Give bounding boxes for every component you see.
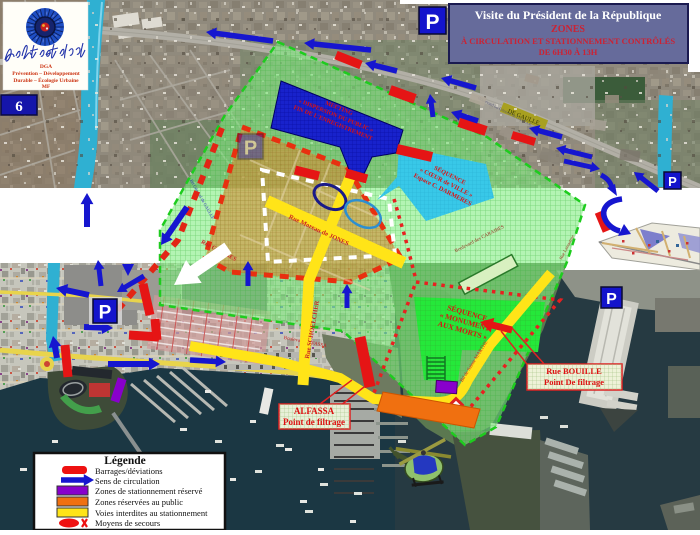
svg-text:P: P bbox=[668, 174, 677, 189]
svg-text:Sens de circulation: Sens de circulation bbox=[95, 476, 160, 486]
svg-text:6: 6 bbox=[15, 99, 23, 115]
svg-text:Durable – Écologie Urbaine: Durable – Écologie Urbaine bbox=[13, 76, 79, 84]
svg-text:P: P bbox=[606, 291, 617, 308]
svg-text:Point De filtrage: Point De filtrage bbox=[544, 377, 604, 387]
svg-text:Barrages/déviations: Barrages/déviations bbox=[95, 466, 163, 476]
svg-text:MF: MF bbox=[42, 84, 51, 90]
svg-text:Point de filtrage: Point de filtrage bbox=[283, 417, 345, 427]
svg-text:ZONES: ZONES bbox=[551, 24, 585, 35]
svg-text:Prévention – Développement: Prévention – Développement bbox=[12, 71, 80, 77]
svg-text:Rue BOUILLE: Rue BOUILLE bbox=[546, 366, 602, 376]
svg-text:Moyens de secours: Moyens de secours bbox=[95, 518, 160, 528]
svg-text:P: P bbox=[425, 11, 439, 34]
svg-text:Voies interdites au stationnem: Voies interdites au stationnement bbox=[95, 508, 208, 518]
svg-text:DGA: DGA bbox=[40, 64, 52, 70]
svg-text:P: P bbox=[99, 303, 112, 324]
svg-text:Zones de stationnement réservé: Zones de stationnement réservé bbox=[95, 486, 203, 496]
svg-text:P: P bbox=[244, 138, 257, 160]
svg-text:Zones réservées au public: Zones réservées au public bbox=[95, 497, 183, 507]
svg-text:À CIRCULATION ET STATIONNEMENT: À CIRCULATION ET STATIONNEMENT CONTRÔLÉS bbox=[461, 36, 675, 46]
svg-text:ALFASSA: ALFASSA bbox=[294, 406, 335, 416]
svg-text:DE 6H30 À 13H: DE 6H30 À 13H bbox=[539, 47, 598, 57]
svg-text:Visite du Président de la Répu: Visite du Président de la République bbox=[475, 8, 662, 22]
